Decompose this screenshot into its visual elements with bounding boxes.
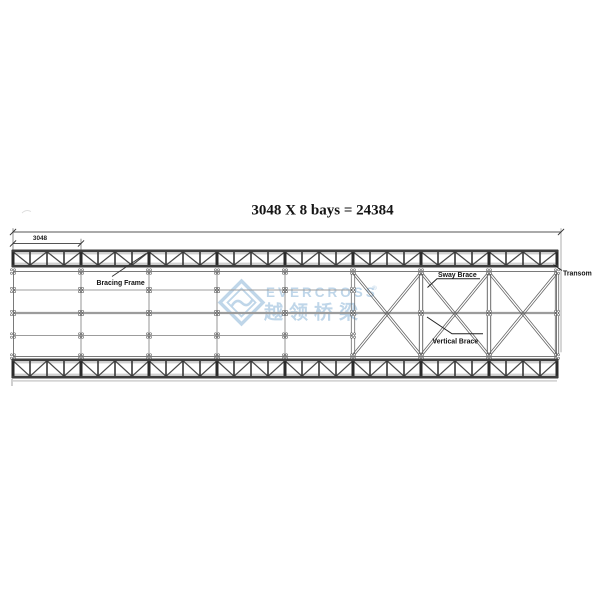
bracing-frame-bolt-mark xyxy=(285,272,287,274)
transom-label: Transom xyxy=(563,270,592,277)
bracing-frame-bolt-mark xyxy=(214,310,216,312)
bracing-frame-bolt-mark xyxy=(10,287,12,289)
bracing-frame-bolt-mark xyxy=(13,314,15,316)
bracing-frame-bolt-mark xyxy=(78,333,80,335)
bracing-frame-bolt-mark xyxy=(489,314,491,316)
bracing-frame-bolt-mark xyxy=(149,310,151,312)
bracing-frame-bolt-mark xyxy=(10,310,12,312)
bracing-frame-bolt-mark xyxy=(557,354,559,356)
scan-artifact xyxy=(22,211,31,213)
bracing-frame-bolt-mark xyxy=(149,354,151,356)
bracing-frame-bolt-mark xyxy=(217,272,219,274)
bracing-frame-bolt-mark xyxy=(421,310,423,312)
bracing-frame-bolt-mark xyxy=(149,269,151,271)
bracing-frame-bolt-mark xyxy=(350,269,352,271)
bracing-frame-bolt-mark xyxy=(353,291,355,293)
bracing-frame-bolt-mark xyxy=(421,314,423,316)
bay-dimension-value: 3048 xyxy=(33,235,48,242)
bracing-frame-bolt-mark xyxy=(282,310,284,312)
bracing-frame-bolt-mark xyxy=(149,291,151,293)
bracing-frame-bolt-mark xyxy=(350,354,352,356)
bracing-frame-bolt-mark xyxy=(217,336,219,338)
vertical-brace-label: Vertical Brace xyxy=(433,339,479,346)
bracing-frame-bolt-mark xyxy=(81,310,83,312)
bracing-frame-bolt-mark xyxy=(81,287,83,289)
sway-brace-diagonal xyxy=(488,273,556,356)
bracing-frame-bolt-mark xyxy=(78,269,80,271)
bracing-frame-bolt-mark xyxy=(285,287,287,289)
bracing-frame-bolt-mark xyxy=(149,287,151,289)
bracing-frame-bolt-mark xyxy=(486,310,488,312)
bracing-frame-bolt-mark xyxy=(285,354,287,356)
bracing-frame-bolt-mark xyxy=(350,314,352,316)
bracing-frame-bolt-mark xyxy=(353,287,355,289)
bracing-frame-bolt-mark xyxy=(146,333,148,335)
bracing-frame-bolt-mark xyxy=(146,310,148,312)
bracing-frame-bolt-mark xyxy=(282,354,284,356)
bracing-frame-bolt-mark xyxy=(10,291,12,293)
drawing-page: EVERCROSS ® 越领桥梁 3048 X 8 bays = 24384 3… xyxy=(0,0,600,600)
bracing-frame-bolt-mark xyxy=(146,272,148,274)
bracing-frame-bolt-mark xyxy=(78,272,80,274)
bracing-frame-bolt-mark xyxy=(489,310,491,312)
bracing-frame-bolt-mark xyxy=(214,272,216,274)
bracing-frame-bolt-mark xyxy=(78,314,80,316)
bracing-frame-bolt-mark xyxy=(217,314,219,316)
bracing-frame-bolt-mark xyxy=(285,314,287,316)
bracing-frame-bolt-mark xyxy=(282,333,284,335)
bracing-frame-bolt-mark xyxy=(282,314,284,316)
bracing-frame-bolt-mark xyxy=(10,333,12,335)
bracing-frame-bolt-mark xyxy=(285,291,287,293)
bracing-frame-bolt-mark xyxy=(353,269,355,271)
bracing-frame-bolt-mark xyxy=(214,287,216,289)
bracing-frame-bolt-mark xyxy=(146,269,148,271)
bracing-frame-bolt-mark xyxy=(146,336,148,338)
bracing-frame-bolt-mark xyxy=(78,310,80,312)
bracing-frame-bolt-mark xyxy=(10,314,12,316)
drawing-title: 3048 X 8 bays = 24384 xyxy=(251,203,394,219)
bracing-frame-bolt-mark xyxy=(282,272,284,274)
bracing-frame-bolt-mark xyxy=(217,333,219,335)
bracing-frame-bolt-mark xyxy=(418,269,420,271)
bridge-structure xyxy=(10,250,559,386)
sway-brace-diagonal xyxy=(490,273,558,356)
bracing-frame-bolt-mark xyxy=(486,269,488,271)
bracing-frame-bolt-mark xyxy=(554,354,556,356)
logo-wave xyxy=(232,300,253,307)
bracing-frame-bolt-mark xyxy=(146,354,148,356)
bracing-frame-bolt-mark xyxy=(217,269,219,271)
bracing-frame-bolt-mark xyxy=(486,354,488,356)
watermark-logo-icon xyxy=(220,281,263,324)
bracing-frame-bolt-mark xyxy=(554,310,556,312)
bracing-frame-bolt-mark xyxy=(217,310,219,312)
bracing-frame-bolt-mark xyxy=(81,314,83,316)
bracing-frame-bolt-mark xyxy=(421,354,423,356)
bracing-frame-bolt-mark xyxy=(350,333,352,335)
sway-brace-leader xyxy=(428,279,481,288)
bracing-frame-bolt-mark xyxy=(217,291,219,293)
bracing-frame-bolt-mark xyxy=(353,272,355,274)
bracing-frame-bolt-mark xyxy=(13,310,15,312)
bracing-frame-bolt-mark xyxy=(10,336,12,338)
bracing-frame-bolt-mark xyxy=(486,272,488,274)
bracing-frame-bolt-mark xyxy=(217,354,219,356)
bracing-frame-bolt-mark xyxy=(486,314,488,316)
bracing-frame-bolt-mark xyxy=(13,287,15,289)
bracing-frame-bolt-mark xyxy=(81,333,83,335)
bracing-frame-bolt-mark xyxy=(282,287,284,289)
bracing-frame-bolt-mark xyxy=(10,354,12,356)
bracing-frame-bolt-mark xyxy=(557,314,559,316)
bracing-frame-bolt-mark xyxy=(78,336,80,338)
bracing-frame-bolt-mark xyxy=(353,310,355,312)
bracing-frame-bolt-mark xyxy=(149,272,151,274)
bracing-frame-bolt-mark xyxy=(13,269,15,271)
bracing-frame-bolt-mark xyxy=(285,333,287,335)
bracing-frame-bolt-mark xyxy=(214,354,216,356)
bracing-frame-bolt-mark xyxy=(557,310,559,312)
bracing-frame-bolt-mark xyxy=(13,354,15,356)
bracing-frame-bolt-mark xyxy=(13,336,15,338)
bracing-frame-bolt-mark xyxy=(214,269,216,271)
bracing-frame-bolt-mark xyxy=(353,314,355,316)
vertical-brace-leader xyxy=(427,317,483,334)
bracing-frame-bolt-mark xyxy=(350,291,352,293)
bracing-frame-bolt-mark xyxy=(421,272,423,274)
bracing-frame-bolt-mark xyxy=(214,291,216,293)
bracing-frame-bolt-mark xyxy=(350,310,352,312)
bracing-frame-bolt-mark xyxy=(489,269,491,271)
bracing-frame-bolt-mark xyxy=(554,314,556,316)
bracing-frame-bolt-mark xyxy=(10,272,12,274)
bracing-frame-bolt-mark xyxy=(81,269,83,271)
bracing-frame-bolt-mark xyxy=(350,272,352,274)
bracing-frame-bolt-mark xyxy=(81,291,83,293)
bracing-frame-bolt-mark xyxy=(353,354,355,356)
bracing-frame-bolt-mark xyxy=(554,269,556,271)
bracing-frame-bolt-mark xyxy=(489,272,491,274)
bracing-frame-bolt-mark xyxy=(217,287,219,289)
bracing-frame-bolt-mark xyxy=(418,310,420,312)
bracing-frame-bolt-mark xyxy=(418,354,420,356)
bracing-frame-bolt-mark xyxy=(214,333,216,335)
bracing-frame-bolt-mark xyxy=(489,354,491,356)
sway-brace-label: Sway Brace xyxy=(438,272,477,279)
bracing-frame-bolt-mark xyxy=(285,336,287,338)
bracing-frame-bolt-mark xyxy=(13,333,15,335)
bracing-frame-bolt-mark xyxy=(214,336,216,338)
bracing-frame-bolt-mark xyxy=(149,314,151,316)
bracing-frame-bolt-mark xyxy=(421,269,423,271)
bracing-frame-bolt-mark xyxy=(282,291,284,293)
bracing-frame-bolt-mark xyxy=(554,272,556,274)
bracing-frame-bolt-mark xyxy=(353,336,355,338)
bracing-frame-bolt-mark xyxy=(149,333,151,335)
bracing-frame-bolt-mark xyxy=(353,333,355,335)
bracing-frame-bolt-mark xyxy=(78,291,80,293)
bracing-frame-bolt-mark xyxy=(557,272,559,274)
watermark-registered-icon: ® xyxy=(372,284,377,292)
bracing-frame-label: Bracing Frame xyxy=(97,280,145,287)
bracing-frame-bolt-mark xyxy=(214,314,216,316)
bracing-frame-bolt-mark xyxy=(146,287,148,289)
bracing-frame-bolt-mark xyxy=(418,314,420,316)
bracing-frame-bolt-mark xyxy=(10,269,12,271)
bracing-frame-bolt-mark xyxy=(282,336,284,338)
bracing-frame-bolt-mark xyxy=(13,291,15,293)
bracing-frame-bolt-mark xyxy=(149,336,151,338)
bracing-frame-bolt-mark xyxy=(285,269,287,271)
bracing-frame-bolt-mark xyxy=(78,354,80,356)
bracing-frame-bolt-mark xyxy=(418,272,420,274)
bracing-frame-bolt-mark xyxy=(78,287,80,289)
bracing-frame-bolt-mark xyxy=(146,291,148,293)
bridge-elevation-drawing: EVERCROSS ® 越领桥梁 3048 X 8 bays = 24384 3… xyxy=(0,0,600,600)
bracing-frame-bolt-mark xyxy=(350,336,352,338)
bracing-frame-bolt-mark xyxy=(81,354,83,356)
bracing-frame-bolt-mark xyxy=(285,310,287,312)
bracing-frame-bolt-mark xyxy=(350,287,352,289)
bracing-frame-bolt-mark xyxy=(13,272,15,274)
bracing-frame-bolt-mark xyxy=(81,336,83,338)
bracing-frame-bolt-mark xyxy=(146,314,148,316)
bracing-frame-bolt-mark xyxy=(282,269,284,271)
bracing-frame-bolt-mark xyxy=(81,272,83,274)
